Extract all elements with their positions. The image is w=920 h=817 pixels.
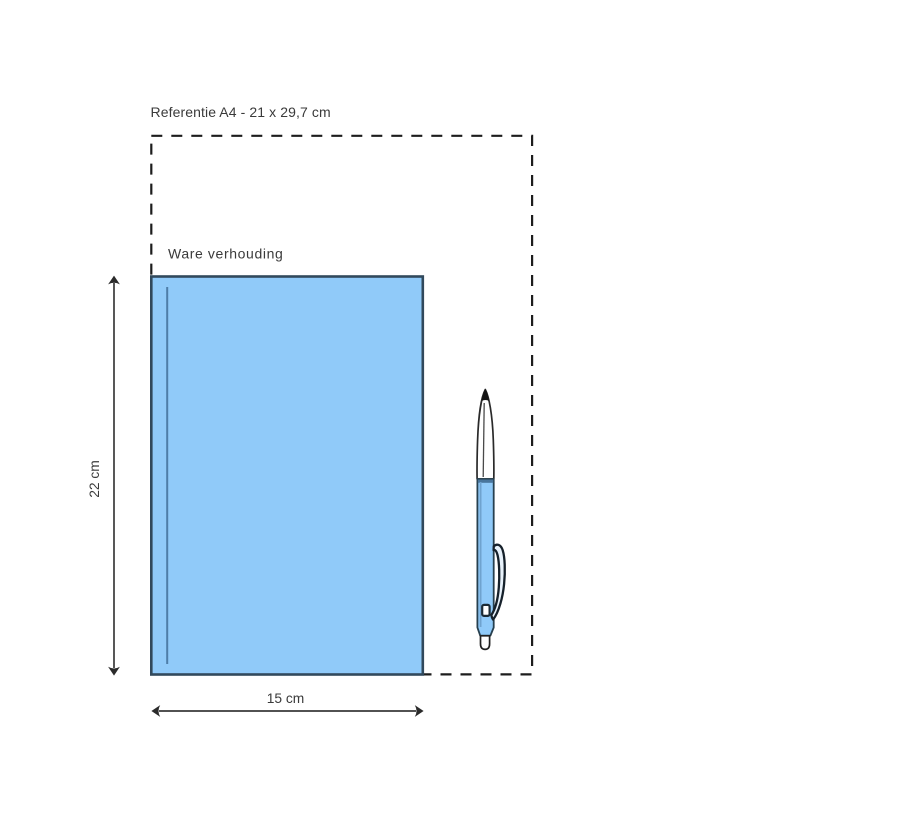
svg-text:Ware verhouding: Ware verhouding (168, 246, 283, 262)
svg-text:22 cm: 22 cm (87, 460, 102, 498)
svg-text:Referentie A4 - 21 x 29,7 cm: Referentie A4 - 21 x 29,7 cm (151, 104, 331, 120)
svg-text:15 cm: 15 cm (267, 691, 305, 706)
